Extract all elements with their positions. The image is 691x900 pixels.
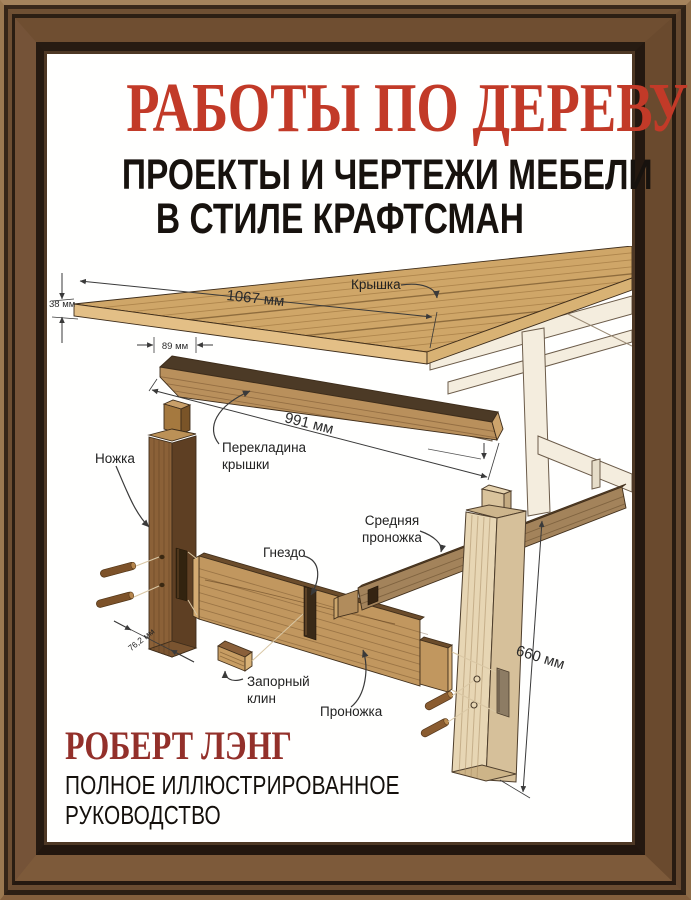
tagline-line-2: РУКОВОДСТВО bbox=[65, 800, 221, 830]
label-wedge-line1: Запорный bbox=[247, 674, 310, 689]
subtitle-line-1: ПРОЕКТЫ И ЧЕРТЕЖИ МЕБЕЛИ bbox=[122, 153, 653, 197]
label-top-rail-line2: крышки bbox=[222, 457, 269, 472]
author-name: РОБЕРТ ЛЭНГ bbox=[65, 726, 349, 766]
dim-leg-height: 660 мм bbox=[514, 642, 567, 673]
book-title: РАБОТЫ ПО ДЕРЕВУ bbox=[47, 74, 632, 144]
left-leg bbox=[149, 400, 196, 657]
table-diagram: 38 мм 1067 мм 89 мм 991 мм 660 мм 76,2 м… bbox=[47, 246, 632, 804]
label-middle-stretcher-line1: Средняя bbox=[365, 513, 419, 528]
stretcher-tenon-end bbox=[448, 645, 452, 692]
label-top-rail-line1: Перекладина bbox=[222, 440, 307, 455]
book-subtitle: ПРОЕКТЫ И ЧЕРТЕЖИ МЕБЕЛИ В СТИЛЕ КРАФТСМ… bbox=[47, 153, 632, 241]
label-stretcher: Проножка bbox=[320, 704, 383, 719]
left-leg-tenon-side bbox=[181, 405, 190, 434]
label-middle-stretcher-line2: проножка bbox=[362, 530, 422, 545]
stretcher-tenon-front bbox=[420, 640, 448, 692]
dowel-hole bbox=[159, 555, 164, 559]
label-wedge-line2: клин bbox=[247, 691, 276, 706]
tagline-line-1: ПОЛНОЕ ИЛЛЮСТРИРОВАННОЕ bbox=[65, 770, 400, 800]
background-rail-mortise bbox=[592, 459, 600, 489]
dim-rail-width: 89 мм bbox=[162, 341, 188, 352]
label-leg: Ножка bbox=[95, 451, 135, 466]
right-leg bbox=[452, 485, 526, 782]
leader-leg bbox=[116, 466, 149, 527]
dim-top-thickness: 38 мм bbox=[49, 299, 75, 310]
left-leg-side-face bbox=[172, 436, 196, 657]
dowel-hole bbox=[471, 702, 477, 708]
label-tabletop: Крышка bbox=[351, 277, 401, 292]
leader-middle-stretcher bbox=[420, 531, 441, 552]
book-cover: 38 мм 1067 мм 89 мм 991 мм 660 мм 76,2 м… bbox=[47, 54, 632, 842]
background-side-rail bbox=[538, 436, 632, 492]
dowel-hole bbox=[474, 676, 480, 682]
dowel-pin bbox=[96, 591, 135, 608]
right-dowels bbox=[420, 690, 454, 738]
dowel-hole bbox=[159, 583, 164, 587]
label-mortise: Гнездо bbox=[263, 545, 306, 560]
subtitle-line-2: В СТИЛЕ КРАФТСМАН bbox=[155, 197, 523, 241]
leader-wedge bbox=[225, 671, 243, 680]
left-dowels bbox=[96, 561, 137, 608]
tagline: ПОЛНОЕ ИЛЛЮСТРИРОВАННОЕ РУКОВОДСТВО bbox=[65, 770, 483, 830]
book-title-text: РАБОТЫ ПО ДЕРЕВУ bbox=[126, 74, 688, 144]
tabletop bbox=[60, 246, 632, 389]
locking-wedge bbox=[218, 641, 252, 671]
middle-stretcher-tenon-end bbox=[334, 597, 338, 619]
author-name-text: РОБЕРТ ЛЭНГ bbox=[65, 726, 292, 766]
